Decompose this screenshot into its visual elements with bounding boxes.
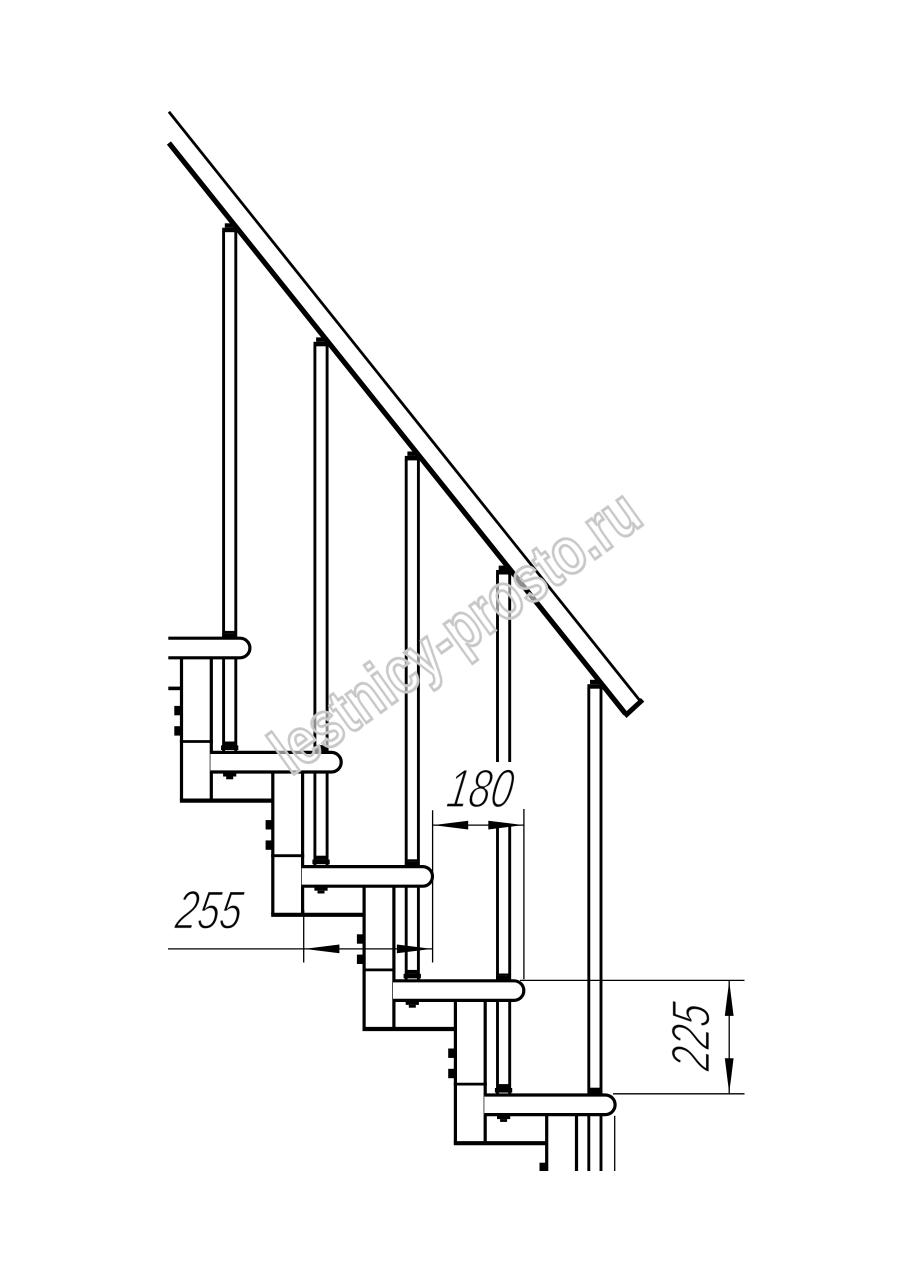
svg-text:225: 225 (662, 999, 722, 1075)
svg-text:180: 180 (443, 759, 518, 819)
svg-text:255: 255 (171, 881, 247, 941)
